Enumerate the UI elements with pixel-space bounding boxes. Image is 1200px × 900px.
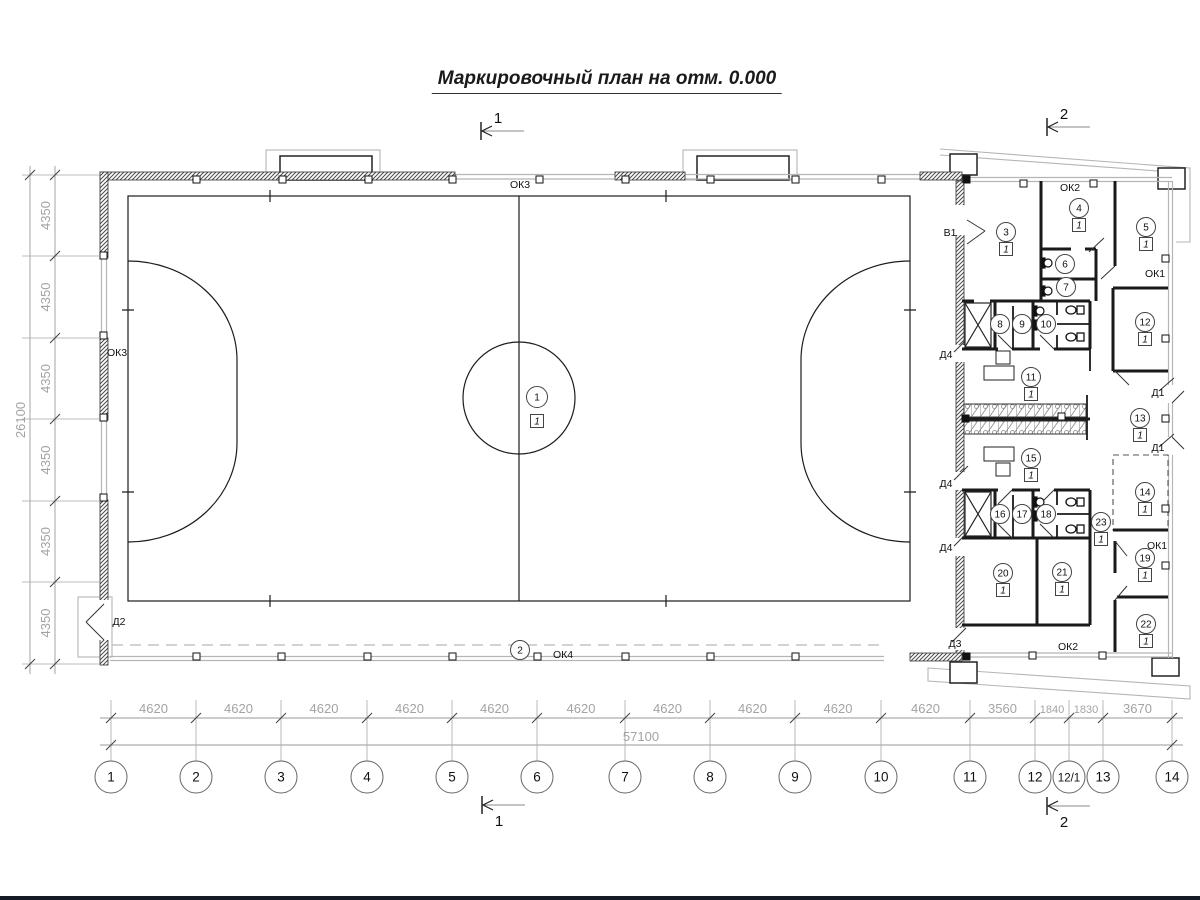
floor-type: 1 [1000,586,1006,597]
room-marker-23: 231 [1092,513,1111,546]
room-number: 1 [534,392,540,403]
floor-type: 1 [1137,431,1143,442]
element-label-Д1: Д1 [1152,387,1165,399]
element-label-Д3: Д3 [949,638,962,650]
room-number: 19 [1139,553,1151,564]
floor-type: 1 [1143,240,1149,251]
room-marker-6: 6 [1056,255,1075,274]
section-marker-label: 1 [494,110,502,127]
dimension-value: 4620 [310,701,339,716]
column-square [365,176,372,183]
room-number: 4 [1076,203,1082,214]
room-number: 9 [1019,319,1025,330]
section-marker-label: 2 [1060,106,1068,123]
wall-left-1 [100,172,108,258]
wall-left-3 [100,500,108,665]
room-marker-16: 16 [991,505,1010,524]
room-number: 10 [1040,319,1052,330]
dimension-value: 4350 [38,201,53,230]
column-square [622,176,629,183]
column-square [1099,652,1106,659]
axis-bubble-5: 5 [436,761,468,793]
dimension-value: 4350 [38,609,53,638]
axis-bubble-9: 9 [779,761,811,793]
axis-bubble-11: 11 [954,761,986,793]
window-band-wing-top [962,178,1172,182]
floor-type: 1 [1076,221,1082,232]
room-marker-14: 141 [1136,483,1155,516]
column-square [193,653,200,660]
room-marker-2: 2 [511,641,530,660]
bench-row-bottom [964,421,1086,434]
element-label-ОК1: ОК1 [1145,268,1165,280]
axis-bubble-label: 12/1 [1058,773,1080,785]
element-label-Д4: Д4 [940,542,953,554]
element-label-ОК2: ОК2 [1060,182,1080,194]
toilet-icon [1066,498,1084,506]
column-square [1020,180,1027,187]
axis-bubble-4: 4 [351,761,383,793]
window-band-left-2 [102,420,107,500]
section-marker-1: 1 [482,796,525,830]
court-penalty-arc-right [801,261,910,542]
dimension-value: 4620 [139,701,168,716]
axis-bubble-12/1: 12/1 [1053,761,1085,793]
axis-bubble-label: 2 [192,770,200,785]
axis-bubble-label: 11 [963,770,977,785]
dimension-value: 4350 [38,527,53,556]
room-number: 12 [1139,317,1151,328]
element-label-Д2: Д2 [113,616,126,628]
section-marker-label: 2 [1060,814,1068,831]
toilet-icon [1066,525,1084,533]
dimension-value: 1840 [1040,704,1064,716]
column-square [364,653,371,660]
element-label-В1: В1 [944,227,957,239]
room-marker-12: 121 [1136,313,1155,346]
axis-bubble-label: 6 [533,770,541,785]
shaft-top [965,303,991,347]
column-square [536,176,543,183]
dimension-value: 4620 [395,701,424,716]
column-square [193,176,200,183]
column-square [1162,335,1169,342]
column-square [707,653,714,660]
room-marker-17: 17 [1013,505,1032,524]
dimension-value: 4350 [38,364,53,393]
floor-type: 1 [1142,335,1148,346]
dimension-value: 4620 [653,701,682,716]
element-label-Д1: Д1 [1152,442,1165,454]
dimension-value: 1830 [1074,704,1098,716]
column-square [963,176,970,183]
axis-bubble-label: 4 [363,770,371,785]
screenshot-bottom-edge [0,896,1200,900]
window-band-top-1 [455,175,615,180]
room-marker-18: 18 [1037,505,1056,524]
room-number: 20 [997,568,1009,579]
column-square [622,653,629,660]
axis-bubble-label: 12 [1027,770,1042,785]
column-square [100,332,107,339]
column-square [962,415,969,422]
axis-bubble-label: 9 [791,770,799,785]
room-marker-1: 11 [527,387,548,428]
court-penalty-arc-left [128,261,237,542]
toilet-icon [1066,306,1084,314]
bench-row-top [964,404,1086,417]
room-number: 8 [997,319,1003,330]
axis-bubble-8: 8 [694,761,726,793]
column-square [100,414,107,421]
dimension-value: 4620 [824,701,853,716]
room-marker-19: 191 [1136,549,1155,582]
room-number: 7 [1063,282,1069,293]
axis-bubble-6: 6 [521,761,553,793]
dimension-value: 4620 [738,701,767,716]
column-square [792,176,799,183]
column-square [1162,415,1169,422]
room-marker-20: 201 [994,564,1013,597]
column-square [878,176,885,183]
axis-bubble-13: 13 [1087,761,1119,793]
column-square [707,176,714,183]
room-number: 23 [1095,517,1107,528]
total-dimension-value: 57100 [623,729,659,744]
entrance-canopy-outer [683,150,797,180]
room-number: 3 [1003,227,1009,238]
drawing-sheet: Маркировочный план на отм. 0.000 [0,0,1200,900]
room-marker-7: 7 [1057,278,1076,297]
floor-type: 1 [1098,535,1104,546]
column-square [449,176,456,183]
floor-type: 1 [1028,471,1034,482]
element-label-ОК3: ОК3 [107,347,127,359]
column-square [534,653,541,660]
room-number: 6 [1062,259,1068,270]
dimension-value: 3560 [988,701,1017,716]
sink-icon [1042,286,1052,296]
dimension-value: 4620 [224,701,253,716]
floor-type: 1 [1028,390,1034,401]
axis-bubble-label: 1 [107,770,115,785]
axis-bubble-3: 3 [265,761,297,793]
axis-bubble-1: 1 [95,761,127,793]
column-square [100,252,107,259]
column-square [1162,255,1169,262]
sink-icon [1042,258,1052,268]
floor-type: 1 [1142,571,1148,582]
window-band-wing-bottom [962,653,1172,657]
column-square [278,653,285,660]
room-marker-22: 221 [1137,615,1156,648]
room-marker-13: 131 [1131,409,1150,442]
room-number: 21 [1056,567,1068,578]
axis-bubble-2: 2 [180,761,212,793]
column-square [449,653,456,660]
room-number: 14 [1139,487,1151,498]
column-square [279,176,286,183]
toilet-icon [1066,333,1084,341]
axis-bubble-label: 14 [1164,770,1180,785]
window-band-left-1 [102,258,107,338]
plan-title: Маркировочный план на отм. 0.000 [432,68,782,94]
dimension-value: 4620 [567,701,596,716]
window-band-bottom [110,657,884,661]
column-square [963,653,970,660]
room-number: 17 [1016,509,1028,520]
room-marker-15: 151 [1022,449,1041,482]
section-marker-2: 2 [1047,106,1090,136]
total-dimension-value: 26100 [13,402,28,438]
dimension-value: 4620 [480,701,509,716]
axis-bubble-label: 3 [277,770,285,785]
axis-bubble-label: 8 [706,770,714,785]
column-square [1058,413,1065,420]
section-marker-2: 2 [1047,797,1090,831]
column-square [1162,562,1169,569]
element-label-Д4: Д4 [940,349,953,361]
floor-type: 1 [1143,637,1149,648]
floor-type: 1 [534,417,540,428]
axis-bubble-12: 12 [1019,761,1051,793]
room-number: 22 [1140,619,1152,630]
column-square [1029,652,1036,659]
wall-top-stub [920,172,962,180]
element-label-ОК1: ОК1 [1147,540,1167,552]
room-number: 18 [1040,509,1052,520]
wall-top-1 [100,172,455,180]
element-label-ОК4: ОК4 [553,649,573,661]
room-number: 5 [1143,222,1149,233]
axis-bubble-label: 7 [621,770,629,785]
room-marker-10: 10 [1037,315,1056,334]
room-marker-4: 41 [1070,199,1089,232]
column-square [1162,505,1169,512]
room-number: 15 [1025,453,1037,464]
dimension-value: 3670 [1123,701,1152,716]
room-marker-5: 51 [1137,218,1156,251]
room-number: 16 [994,509,1006,520]
dimension-value: 4350 [38,283,53,312]
section-marker-label: 1 [495,813,503,830]
wall-bottom-stub [910,653,962,661]
room-marker-3: 31 [997,223,1016,256]
sports-court [122,190,916,607]
element-label-Д4: Д4 [940,478,953,490]
room-marker-8: 8 [991,315,1010,334]
column-square [100,494,107,501]
dimension-value: 4620 [911,701,940,716]
axis-bubble-label: 5 [448,770,456,785]
porch-bottom-right-2 [1152,658,1179,676]
room-number: 2 [517,645,523,656]
porch-top-right-2 [1158,168,1185,189]
element-label-ОК2: ОК2 [1058,641,1078,653]
dashed-lines [112,455,1168,645]
dimension-axes: 12345678910111212/1131446204620462046204… [13,166,1188,793]
room-number: 13 [1134,413,1146,424]
shaft-bottom [965,492,991,536]
floor-type: 1 [1003,245,1009,256]
dimension-value: 4350 [38,446,53,475]
sink-icon [1034,306,1044,316]
room-number: 11 [1026,372,1037,383]
element-label-ОК3: ОК3 [510,179,530,191]
porch-bottom-right-1 [950,662,977,683]
axis-bubble-label: 13 [1095,770,1110,785]
axis-bubble-14: 14 [1156,761,1188,793]
floor-type: 1 [1142,505,1148,516]
axis-bubble-7: 7 [609,761,641,793]
room-marker-11: 111 [1022,368,1041,401]
room-marker-21: 211 [1053,563,1072,596]
column-square [1090,180,1097,187]
section-marker-1: 1 [481,110,524,140]
floor-plan-drawing: 1123141516789101111211311411511617181912… [0,0,1200,900]
axis-bubble-label: 10 [873,770,888,785]
floor-type: 1 [1059,585,1065,596]
axis-bubble-10: 10 [865,761,897,793]
column-square [792,653,799,660]
room-marker-9: 9 [1013,315,1032,334]
